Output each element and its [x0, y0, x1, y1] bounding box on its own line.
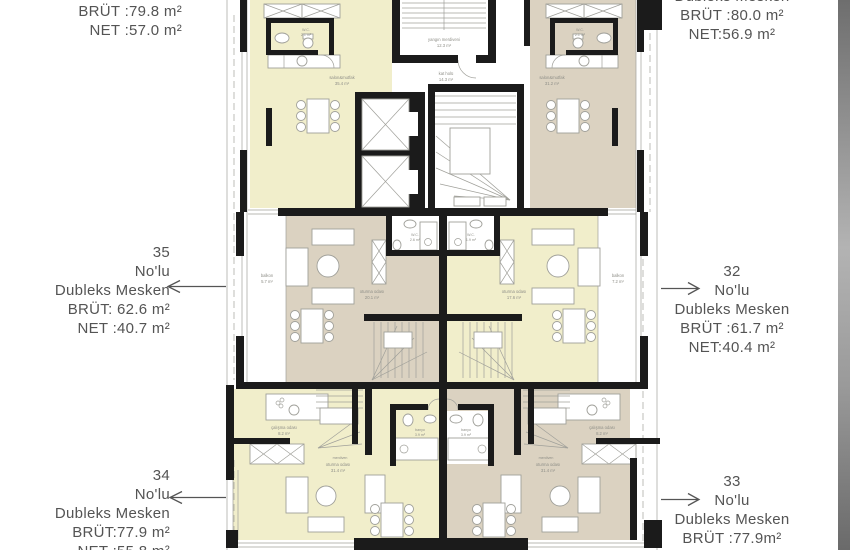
unit-type-label: Dubleks Mesken — [664, 300, 800, 319]
net-area-label: NET :55.8 m² — [0, 542, 170, 550]
svg-text:merdiven: merdiven — [539, 456, 554, 460]
svg-text:oturma odası: oturma odası — [502, 289, 526, 294]
main-staircase — [435, 96, 516, 206]
unit-number: 34 — [0, 466, 170, 485]
svg-text:2.6 m²: 2.6 m² — [410, 238, 421, 242]
brut-area-label: BRÜT :61.7 m² — [664, 319, 800, 338]
svg-text:balkon: balkon — [612, 273, 625, 278]
fire-stairs — [402, 0, 486, 30]
svg-text:kat holü: kat holü — [439, 71, 454, 76]
brut-area-label: BRÜT :79.8 m² — [0, 2, 182, 21]
page-edge-strip — [838, 0, 850, 550]
arrow-to-unit-32 — [661, 280, 703, 297]
svg-text:31.4 m²: 31.4 m² — [331, 468, 346, 473]
label-block-unit-34: 34 No'lu Dubleks Mesken BRÜT:77.9 m² NET… — [0, 466, 170, 550]
label-block-unit-33: 33 No'lu Dubleks Mesken BRÜT :77.9m² NET… — [664, 472, 800, 550]
svg-text:31.4 m²: 31.4 m² — [541, 468, 556, 473]
svg-text:8.2 m²: 8.2 m² — [596, 431, 608, 436]
brut-area-label: BRÜT :77.9m² — [664, 529, 800, 548]
svg-text:8.2 m²: 8.2 m² — [278, 431, 290, 436]
unit-type-label: Dubleks Mesken — [0, 504, 170, 523]
svg-text:merdiven: merdiven — [333, 456, 348, 460]
brut-area-label: BRÜT: 62.6 m² — [0, 300, 170, 319]
label-block-unit-32: 32 No'lu Dubleks Mesken BRÜT :61.7 m² NE… — [664, 262, 800, 357]
label-block-top-left: BRÜT :79.8 m² NET :57.0 m² — [0, 2, 182, 40]
brut-area-label: BRÜT :80.0 m² — [664, 6, 800, 25]
svg-text:31.2 m²: 31.2 m² — [545, 81, 560, 86]
unit-number: 32 — [664, 262, 800, 281]
arrow-to-unit-34 — [166, 489, 226, 506]
svg-text:W.C.: W.C. — [411, 233, 419, 237]
unit-number: 33 — [664, 472, 800, 491]
brut-area-label: BRÜT:77.9 m² — [0, 523, 170, 542]
svg-text:3.9 m²: 3.9 m² — [415, 433, 426, 437]
net-area-label: NET:40.4 m² — [664, 338, 800, 357]
unit-number: 35 — [0, 243, 170, 262]
svg-text:W.C.: W.C. — [467, 233, 475, 237]
arrow-to-unit-35 — [164, 278, 226, 295]
svg-text:banyo: banyo — [415, 428, 425, 432]
svg-text:balkon: balkon — [261, 273, 274, 278]
svg-text:20.1 m²: 20.1 m² — [365, 295, 380, 300]
unit-type-label: Dubleks Mesken — [0, 281, 170, 300]
svg-text:salon&mutfak: salon&mutfak — [539, 75, 565, 80]
svg-text:2.1 m²: 2.1 m² — [575, 33, 586, 37]
arrow-to-unit-33 — [661, 491, 703, 508]
label-block-unit-35: 35 No'lu Dubleks Mesken BRÜT: 62.6 m² NE… — [0, 243, 170, 338]
svg-text:salon&mutfak: salon&mutfak — [329, 75, 355, 80]
svg-text:oturma odası: oturma odası — [326, 462, 350, 467]
nolu-label: No'lu — [0, 485, 170, 504]
net-area-label: NET:56.9 m² — [664, 25, 800, 44]
floor-plan-page: BRÜT :79.8 m² NET :57.0 m² 35 No'lu Dubl… — [0, 0, 850, 550]
svg-text:banyo: banyo — [461, 428, 471, 432]
svg-text:35.4 m²: 35.4 m² — [335, 81, 350, 86]
svg-text:oturma odası: oturma odası — [360, 289, 384, 294]
nolu-label: No'lu — [0, 262, 170, 281]
net-area-label: NET :57.0 m² — [0, 21, 182, 40]
svg-text:5.7 m²: 5.7 m² — [261, 279, 273, 284]
svg-text:1.9 m²: 1.9 m² — [466, 238, 477, 242]
svg-text:14.3 m²: 14.3 m² — [439, 77, 454, 82]
unit-type-label: Dubleks Mesken — [664, 510, 800, 529]
svg-text:W.C.: W.C. — [302, 28, 310, 32]
svg-text:17.6 m²: 17.6 m² — [507, 295, 522, 300]
floor-plan: W.C. 2.1 m² salon&mutfak 35.4 m² yangın … — [222, 0, 662, 550]
svg-text:3.9 m²: 3.9 m² — [461, 433, 472, 437]
svg-text:çalışma odası: çalışma odası — [271, 425, 297, 430]
elevators — [355, 92, 425, 214]
svg-text:2.1 m²: 2.1 m² — [301, 33, 312, 37]
svg-text:12.3 m²: 12.3 m² — [437, 43, 452, 48]
net-area-label: NET :40.7 m² — [0, 319, 170, 338]
svg-text:W.C.: W.C. — [576, 28, 584, 32]
label-block-top-right: Dubleks Mesken BRÜT :80.0 m² NET:56.9 m² — [664, 0, 800, 44]
svg-text:7.2 m²: 7.2 m² — [612, 279, 624, 284]
svg-text:oturma odası: oturma odası — [536, 462, 560, 467]
svg-text:çalışma odası: çalışma odası — [589, 425, 615, 430]
svg-text:yangın merdiveni: yangın merdiveni — [428, 37, 460, 42]
